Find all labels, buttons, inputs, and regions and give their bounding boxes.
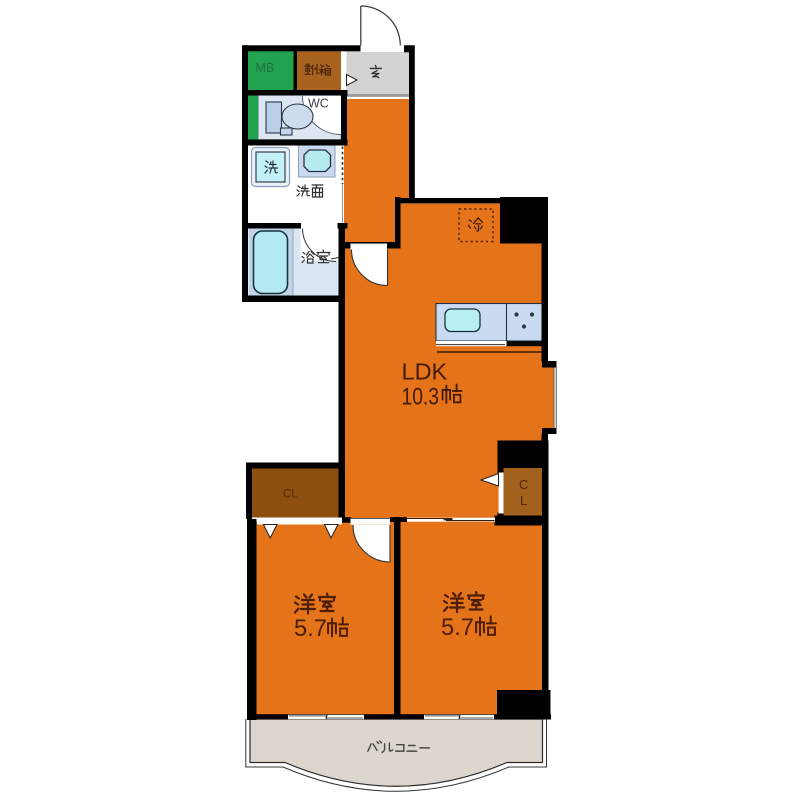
svg-text:WC: WC: [308, 97, 329, 111]
svg-text:LDK: LDK: [402, 359, 448, 385]
svg-text:L: L: [520, 493, 527, 508]
svg-text:5.7: 5.7: [294, 615, 327, 642]
svg-text:10.3: 10.3: [402, 384, 440, 411]
svg-text:CL: CL: [283, 489, 298, 501]
svg-text:5.7: 5.7: [441, 614, 474, 641]
svg-text:C: C: [519, 477, 528, 492]
svg-text:MB: MB: [256, 61, 275, 75]
